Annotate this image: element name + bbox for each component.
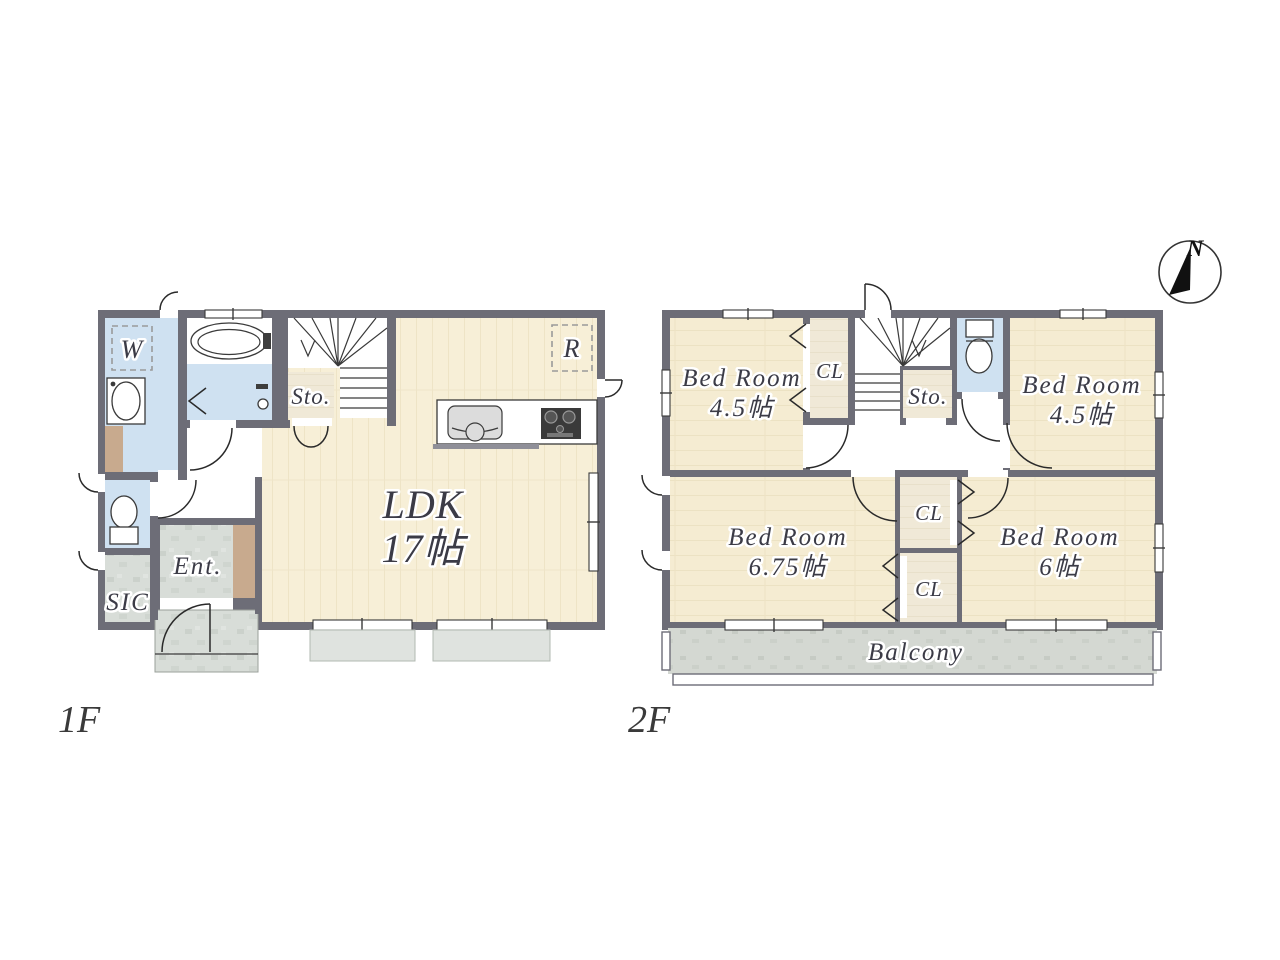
- wall-segment: [98, 548, 150, 555]
- bedroom-tr-name: Bed Room: [1022, 372, 1141, 399]
- closet-mu-label: CL: [915, 501, 943, 525]
- wall-segment: [255, 477, 262, 614]
- terrace-slab: [433, 630, 550, 661]
- bedroom-tl-size: 4.5帖: [710, 395, 775, 422]
- shower-faucet-icon: [256, 384, 268, 389]
- bathroom: [187, 318, 272, 420]
- kitchen-sink: [448, 406, 502, 441]
- shoe-closet: SIC: [105, 555, 150, 622]
- kitchen-back-door: [605, 380, 622, 397]
- balcony-label: Balcony: [868, 639, 964, 666]
- kitchen-counter: [433, 400, 597, 449]
- closet-tl-label: CL: [816, 359, 844, 383]
- wall-segment: [158, 518, 255, 525]
- bedroom-top-right: Bed Room 4.5帖: [1010, 318, 1155, 470]
- bedroom-br-size: 6帖: [1039, 554, 1082, 581]
- stove-icon: [541, 408, 581, 439]
- toilet-room-1f: [105, 480, 150, 548]
- casement-window: [642, 475, 662, 495]
- floor2-label: 2F: [628, 699, 671, 741]
- terrace-slab: [310, 630, 415, 661]
- washroom-back-door: [160, 292, 178, 310]
- storage-2f-label: Sto.: [908, 384, 947, 409]
- balcony-rail: [673, 674, 1153, 685]
- washer-label: W: [121, 335, 145, 364]
- bedroom-bottom-right: Bed Room 6帖: [962, 477, 1155, 622]
- wall-segment: [178, 318, 187, 480]
- bath-faucet-icon: [263, 333, 271, 349]
- entrance-step-strip: [233, 525, 255, 598]
- north-label: N: [1186, 236, 1205, 261]
- floor-plan-page: W SIC: [0, 0, 1280, 960]
- casement-window: [642, 550, 662, 570]
- bedroom-tl-name: Bed Room: [682, 365, 801, 392]
- balcony: Balcony: [662, 628, 1161, 685]
- entrance-label: Ent.: [173, 553, 223, 580]
- casement-window: [79, 473, 98, 492]
- vanity-sink: [107, 378, 145, 424]
- casement-window: [79, 551, 98, 570]
- floor1-label: 1F: [58, 699, 101, 741]
- toilet-icon: [966, 320, 993, 337]
- closet-ml-label: CL: [915, 577, 943, 601]
- entrance: Ent.: [160, 525, 255, 610]
- toilet-icon: [111, 496, 137, 528]
- refrigerator-label: R: [563, 334, 581, 363]
- washroom: W: [105, 318, 178, 472]
- bathtub: [191, 323, 267, 359]
- compass: N: [1159, 236, 1221, 303]
- bedroom-br-name: Bed Room: [1000, 524, 1119, 551]
- bedroom-tr-size: 4.5帖: [1050, 402, 1115, 429]
- floor2-plan: Bed Room 4.5帖 Bed Room 4.5帖 Bed Room 6.7…: [628, 284, 1165, 741]
- bedroom-top-left: Bed Room 4.5帖: [670, 318, 803, 470]
- bedroom-bl-name: Bed Room: [728, 524, 847, 551]
- ldk-size-label: 17帖: [382, 526, 469, 571]
- stairwell-door: [865, 284, 891, 310]
- storage-1f-label: Sto.: [291, 384, 330, 409]
- ldk-label: LDK: [382, 482, 465, 527]
- bedroom-bl-size: 6.75帖: [749, 554, 829, 581]
- wall-segment: [387, 310, 396, 426]
- sic-label: SIC: [106, 589, 150, 616]
- entrance-porch: [155, 604, 258, 672]
- floor1-plan: W SIC: [58, 292, 622, 741]
- toilet-room-2f: [957, 318, 1003, 392]
- linen-strip: [105, 426, 123, 472]
- bedroom-bottom-left: Bed Room 6.75帖: [670, 477, 895, 622]
